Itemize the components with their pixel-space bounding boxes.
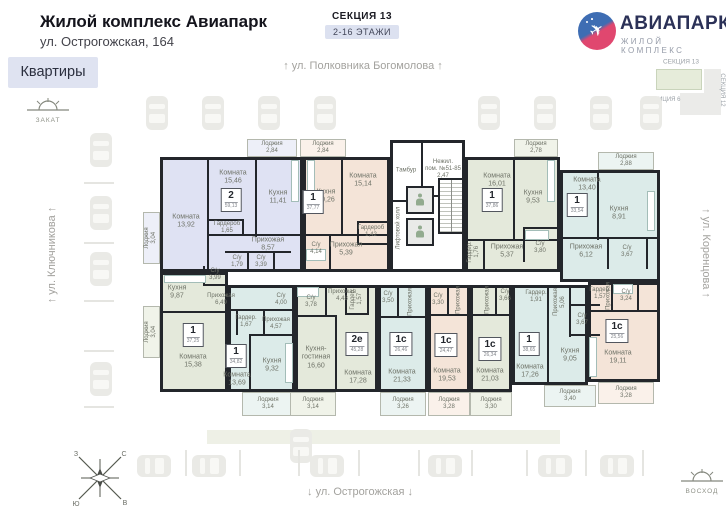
car-icon [192,455,226,477]
loggia [143,212,160,264]
sunrise-label: ВОСХОД [686,488,719,495]
car-icon [314,96,336,130]
street-right: ↑ ул. Коренцова ↑ [700,208,712,298]
brand-logo[interactable]: ✈ [578,12,616,50]
car-icon [90,362,112,396]
minimap-section13-label: СЕКЦИЯ 13 [663,59,699,66]
street-top: ↑ ул. Полковника Богомолова ↑ [283,60,443,72]
minimap-position-6 [680,93,704,115]
apartment-type-badge: 259,13 [221,188,242,212]
car-icon [600,455,634,477]
person-icon [416,226,424,239]
car-icon [258,96,280,130]
sunset-icon [26,97,70,115]
apartment-type-badge: 134,82 [226,344,247,368]
car-icon [640,96,662,130]
car-icon [90,196,112,230]
loggia [598,152,654,170]
loggia [598,382,654,404]
car-icon [202,96,224,130]
brand-name: АВИАПАРК [620,13,726,35]
compass-icon: З С В Ю [68,446,132,510]
loggia [514,139,558,157]
floors-badge: 2-16 ЭТАЖИ [325,25,399,39]
page-title: Жилой комплекс Авиапарк [40,12,267,32]
apartment-type-badge: 1с25,56 [605,319,628,343]
loggia [290,392,336,416]
loggia [143,306,160,358]
car-icon [310,455,344,477]
elevator [406,186,434,214]
sparkle-icon [591,18,593,20]
apartment-type-badge: 137,86 [482,188,503,212]
car-icon [137,455,171,477]
apartment-type-badge: 1с26,46 [389,332,412,356]
tab-apartments[interactable]: Квартиры [8,57,98,88]
apartment-type-badge: 133,54 [567,193,588,217]
car-icon [534,96,556,130]
apartment-type-badge: 137,77 [303,190,324,214]
car-icon [290,429,312,463]
car-icon [90,133,112,167]
loggia [300,139,346,157]
car-icon [428,455,462,477]
apartment-type-badge: 137,25 [183,323,204,347]
svg-text:В: В [123,500,128,507]
car-icon [90,252,112,286]
car-icon [478,96,500,130]
street-bottom: ↓ ул. Острогожская ↓ [307,486,413,498]
elevator [406,218,434,246]
loggia [544,385,596,407]
person-icon [416,194,424,207]
car-icon [538,455,572,477]
loggia [470,392,512,416]
section-label: СЕКЦИЯ 13 [332,11,392,22]
apartment-type-badge: 1с26,34 [478,337,501,361]
airplane-icon: ✈ [586,18,609,43]
apartment-type-badge: 1с24,47 [434,333,457,357]
street-left: ↑ ул. Ключникова ↑ [46,207,58,304]
apartment-a-2room[interactable] [160,157,303,272]
apartment-d-1room[interactable] [560,170,660,282]
sunset-label: ЗАКАТ [36,117,61,124]
loggia [247,139,297,157]
minimap-section12-label: СЕКЦИЯ 12 [719,73,725,106]
sidewalk [207,430,560,444]
car-icon [146,96,168,130]
svg-text:С: С [121,451,126,458]
minimap-section-13[interactable] [656,69,702,90]
svg-text:Ю: Ю [72,501,79,508]
brand-subtitle: ЖИЛОЙ КОМПЛЕКС [621,37,726,55]
svg-text:З: З [74,451,78,458]
car-icon [590,96,612,130]
page: Жилой комплекс Авиапарк ул. Острогожская… [0,0,726,513]
apartment-type-badge: 138,65 [519,332,540,356]
loggia [380,392,426,416]
page-address: ул. Острогожская, 164 [40,34,174,49]
stairs [438,178,464,234]
apartment-type-badge: 2е45,28 [345,332,368,356]
sparkle-icon [586,21,588,23]
loggia [428,392,470,416]
sunrise-icon [680,468,724,486]
loggia [242,392,294,416]
